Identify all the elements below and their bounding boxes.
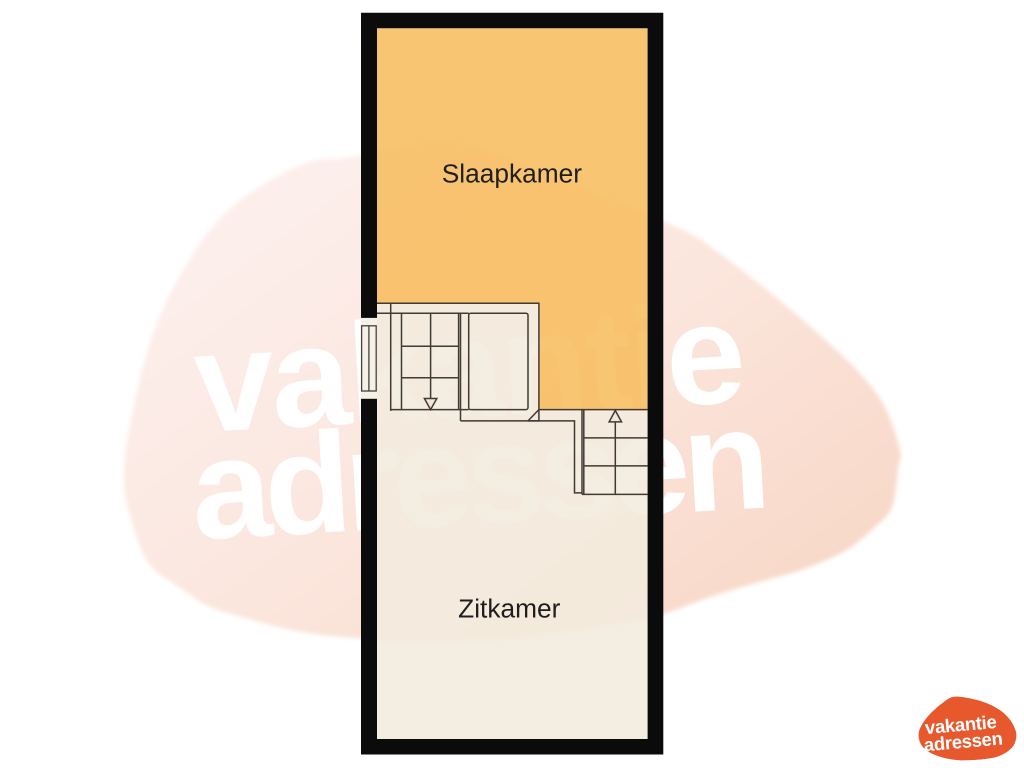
svg-text:Zitkamer: Zitkamer [458, 593, 561, 623]
svg-text:Slaapkamer: Slaapkamer [442, 159, 583, 189]
